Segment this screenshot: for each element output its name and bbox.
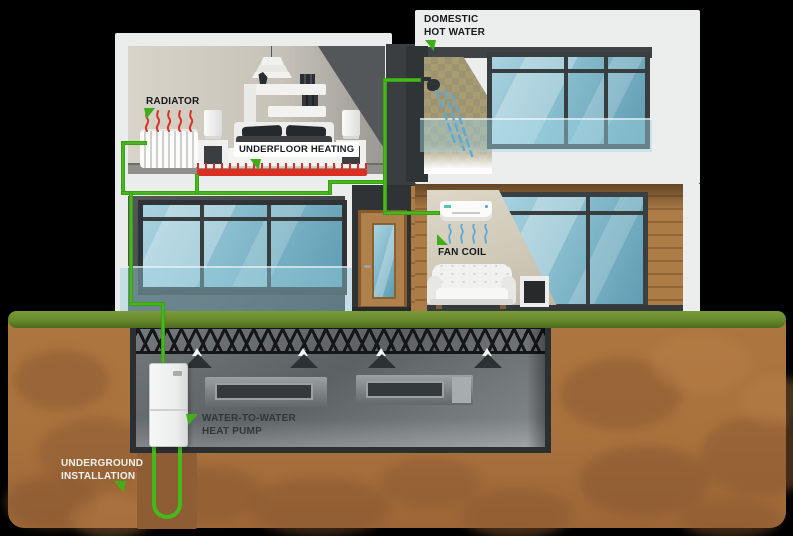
pipe-fancoil-branch (383, 211, 440, 215)
underfloor-heating-label-text: UNDERFLOOR HEATING (239, 144, 354, 155)
grass-strip (8, 311, 786, 328)
chandelier-icon (252, 72, 292, 78)
heating-system-diagram: RADIATOR UNDERFLOOR HEATING DOMESTIC HOT… (0, 0, 793, 536)
domestic-hot-water-line1: DOMESTIC (424, 13, 485, 26)
window-transom (143, 217, 342, 221)
glass-streak (372, 223, 396, 299)
pipe-to-heat-pump (161, 302, 165, 368)
wall-shelf (244, 84, 256, 122)
pipe-floor-run (121, 191, 332, 195)
underfloor-heating-label: UNDERFLOOR HEATING (234, 142, 359, 157)
chandelier-icon (256, 65, 288, 72)
basement-right-shadow (527, 326, 545, 447)
pipe-shower-branch (383, 78, 421, 82)
fan-coil-label-text: FAN COIL (438, 247, 486, 258)
basement-floor-glow (136, 418, 545, 447)
domestic-hot-water-line2: HOT WATER (424, 26, 485, 39)
fan-coil-vent (452, 212, 480, 214)
underground-installation-label: UNDERGROUND INSTALLATION (61, 457, 143, 483)
radiator-label-text: RADIATOR (146, 96, 199, 107)
fan-coil-indicator (485, 205, 488, 208)
entrance-door (358, 210, 407, 309)
heat-pump-vent (173, 371, 182, 376)
workbench-inset (215, 383, 313, 400)
water-spray-icon (434, 90, 474, 164)
workbench (205, 377, 327, 407)
ceiling-lamp-icon (368, 354, 396, 368)
fan-coil-label: FAN COIL (438, 246, 486, 259)
underground-installation-line2: INSTALLATION (61, 470, 143, 483)
window-transom (502, 211, 643, 215)
ceiling-lamp-icon (474, 354, 502, 368)
couch-leg (436, 305, 442, 309)
pipe-step-horizontal (328, 180, 387, 184)
underfloor-heating-strip (197, 169, 367, 176)
shelf-books (302, 95, 318, 106)
soil-blob (460, 488, 572, 536)
media-cabinet (520, 276, 549, 307)
underground-installation-line1: UNDERGROUND (61, 457, 143, 470)
media-screen (524, 281, 545, 303)
soil-blob (700, 416, 793, 496)
table-lamp-icon (342, 110, 360, 136)
pipe-underfloor-branch (195, 174, 199, 195)
workbench (356, 375, 473, 405)
shelf-books (300, 74, 315, 84)
domestic-hot-water-label: DOMESTIC HOT WATER (424, 13, 485, 39)
shower-arm-icon (423, 77, 431, 81)
heat-pump-label: WATER-TO-WATER HEAT PUMP (202, 412, 296, 438)
heat-pump-divider (150, 409, 187, 411)
pipe-left-riser (121, 141, 125, 195)
table-lamp-icon (204, 110, 222, 136)
pipe-down-main (129, 191, 133, 306)
pipe-ground-loop (152, 441, 182, 519)
radiator-label: RADIATOR (146, 95, 199, 108)
ceiling-lamp-icon (184, 354, 212, 368)
workbench-endcap (452, 377, 471, 403)
heat-pump-label-line2: HEAT PUMP (202, 425, 296, 438)
wall-shelf (244, 84, 326, 95)
door-handle (364, 265, 371, 268)
workbench-inset (366, 381, 444, 398)
soil-blob (380, 458, 480, 508)
pipe-right-riser (383, 78, 387, 215)
chandelier-stem (271, 46, 272, 58)
pipe-jog-horizontal (129, 302, 165, 306)
basement-garage (130, 326, 551, 453)
radiator-unit (140, 131, 198, 168)
nightstand-front (204, 146, 222, 164)
fan-coil-display (444, 205, 451, 208)
door-glass (372, 223, 396, 299)
ceiling-lamp-icon (290, 354, 318, 368)
heat-pump-label-line1: WATER-TO-WATER (202, 412, 296, 425)
soil-blob (14, 350, 109, 410)
window-transom (492, 69, 645, 73)
white-corner-column (683, 184, 700, 315)
soil-blob (250, 478, 390, 536)
chandelier-icon (260, 57, 284, 65)
fan-coil-unit (440, 201, 492, 221)
soil-blob (680, 498, 780, 536)
soil-blob (650, 334, 750, 392)
wall-shelf (268, 106, 326, 117)
couch-leg (500, 305, 506, 309)
airflow-icon (446, 224, 492, 244)
heat-pump-unit (149, 363, 188, 447)
